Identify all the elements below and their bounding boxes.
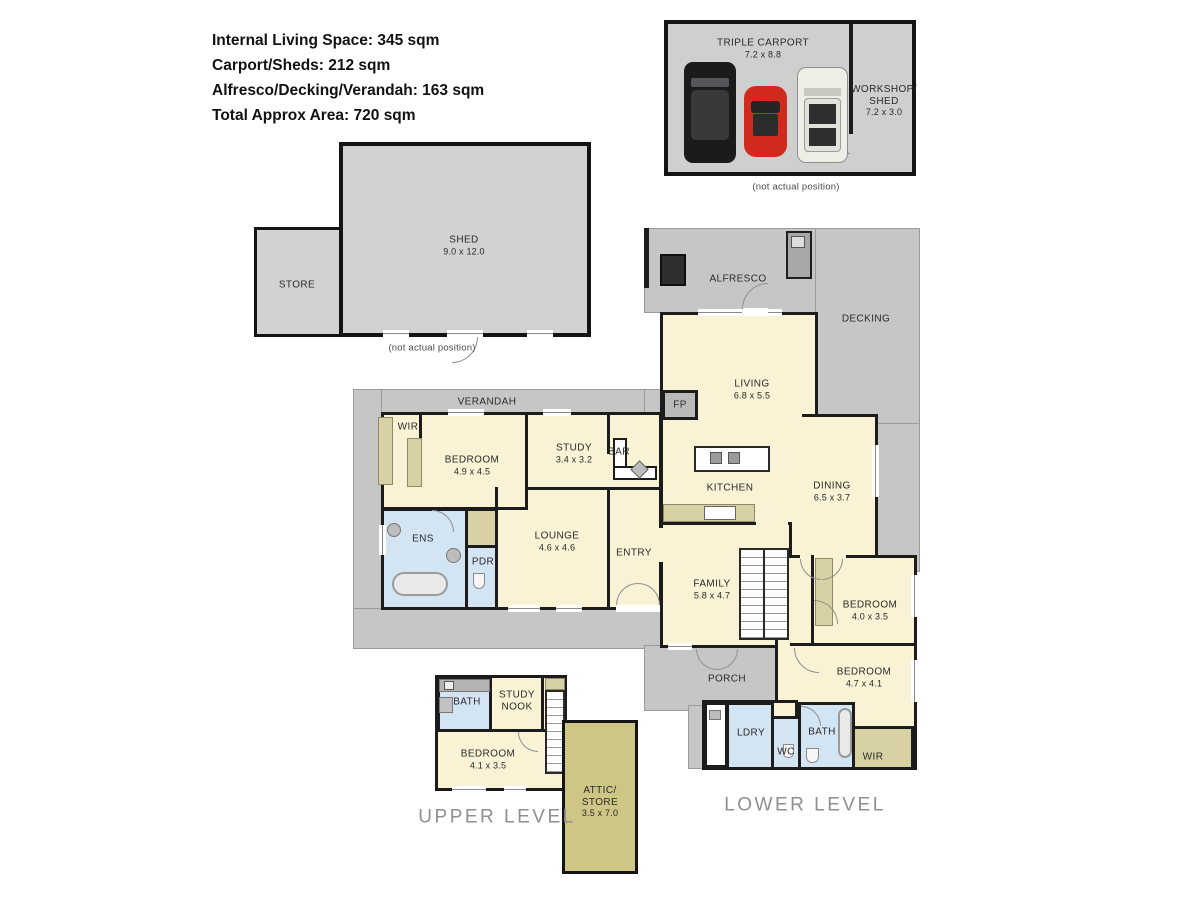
- white-car-front-window: [809, 104, 836, 124]
- workshop-label: WORKSHOP/ SHED 7.2 x 3.0: [851, 84, 917, 119]
- ensuite-sink-icon: [387, 523, 401, 537]
- window-bedroom1: [448, 409, 484, 416]
- room-label-family: FAMILY 5.8 x 4.7: [693, 579, 730, 602]
- wir2-room: [852, 726, 914, 770]
- kitchen-sink-2: [728, 452, 740, 464]
- floorplan-page: Internal Living Space: 345 sqm Carport/S…: [0, 0, 1200, 900]
- room-label-lounge: LOUNGE 4.6 x 4.6: [535, 531, 580, 554]
- entry-door-gap: [616, 605, 660, 612]
- wir1-shelf-right: [407, 438, 422, 487]
- room-label-ens: ENS: [412, 533, 434, 545]
- area-statistics: Internal Living Space: 345 sqm Carport/S…: [212, 28, 484, 128]
- room-label-dining: DINING 6.5 x 3.7: [813, 481, 850, 504]
- stat-carport-sheds: Carport/Sheds: 212 sqm: [212, 53, 484, 78]
- carport-note: (not actual position): [752, 181, 839, 193]
- window-bedroom2: [911, 575, 918, 617]
- outdoor-cabinet-detail: [791, 236, 805, 248]
- red-car-windshield: [751, 101, 780, 113]
- upper-level-label: UPPER LEVEL: [418, 811, 575, 823]
- shed-window-3: [527, 330, 553, 337]
- kitchen-family-opening: [756, 519, 788, 528]
- window-lounge-1: [508, 605, 540, 612]
- powder-toilet-icon: [473, 573, 485, 589]
- window-family: [668, 643, 692, 650]
- white-car-rear-window: [809, 128, 836, 146]
- room-label-bedroom2: BEDROOM 4.0 x 3.5: [843, 600, 897, 623]
- laundry-tub-icon: [709, 710, 721, 720]
- shed-window-2: [447, 330, 483, 337]
- room-label-attic-store: ATTIC/ STORE 3.5 x 7.0: [582, 785, 618, 820]
- room-label-pdr: PDR: [472, 556, 494, 568]
- red-car-roof: [753, 114, 778, 136]
- decking-area-upper: [815, 228, 920, 424]
- room-label-upper-bath: BATH: [453, 696, 481, 708]
- upper-window-2: [504, 786, 526, 793]
- shed-note: (not actual position): [388, 342, 475, 354]
- room-label-bar: BAR: [608, 446, 630, 458]
- window-ensuite: [379, 525, 386, 555]
- stove-icon: [704, 506, 736, 520]
- window-lounge-2: [556, 605, 582, 612]
- shed-window-1: [383, 330, 409, 337]
- upper-nook-east-wall: [541, 677, 544, 732]
- store-label: STORE: [279, 279, 315, 291]
- room-label-bath: BATH: [808, 726, 836, 738]
- window-living-sliders: [698, 309, 782, 316]
- room-label-study-nook: STUDY NOOK: [499, 690, 535, 713]
- bathtub-icon: [392, 572, 448, 596]
- wc-room: [771, 716, 801, 770]
- stairs-divider: [763, 550, 765, 638]
- lower-level-label: LOWER LEVEL: [724, 799, 886, 811]
- room-label-upper-bedroom: BEDROOM 4.1 x 3.5: [461, 749, 515, 772]
- alfresco-left-wall: [644, 228, 649, 288]
- room-label-study: STUDY 3.4 x 3.2: [556, 443, 592, 466]
- upper-bath-shower-icon: [439, 697, 453, 713]
- study-south-wall: [525, 487, 662, 490]
- window-bedroom3: [911, 660, 918, 702]
- entry-family-opening: [656, 528, 666, 562]
- room-label-bedroom3: BEDROOM 4.7 x 4.1: [837, 667, 891, 690]
- wir1-shelf-left: [378, 417, 393, 485]
- room-label-porch: PORCH: [708, 673, 746, 685]
- white-car-windshield: [804, 88, 841, 96]
- shed-label: SHED 9.0 x 12.0: [443, 235, 485, 258]
- upper-bath-sink-icon: [444, 681, 454, 690]
- black-suv-windshield: [691, 78, 729, 87]
- bath-toilet-icon: [806, 748, 819, 763]
- room-label-decking: DECKING: [842, 313, 890, 325]
- room-label-fp: FP: [673, 399, 687, 411]
- room-label-kitchen: KITCHEN: [707, 482, 754, 494]
- carport-label: TRIPLE CARPORT 7.2 x 8.8: [717, 38, 809, 61]
- bedroom1-east-wall: [525, 412, 528, 510]
- stat-alfresco-decking: Alfresco/Decking/Verandah: 163 sqm: [212, 78, 484, 103]
- lounge-entry-wall: [607, 487, 610, 610]
- room-label-entry: ENTRY: [616, 547, 652, 559]
- ensuite-sink2-icon: [446, 548, 461, 563]
- room-label-bedroom1: BEDROOM 4.9 x 4.5: [445, 455, 499, 478]
- window-dining: [872, 445, 879, 497]
- room-label-verandah: VERANDAH: [458, 396, 517, 408]
- room-label-alfresco: ALFRESCO: [709, 273, 766, 285]
- room-label-living: LIVING 6.8 x 5.5: [734, 379, 770, 402]
- room-label-wir2: WIR: [863, 751, 884, 763]
- bbq-icon: [660, 254, 686, 286]
- verandah-bottom: [353, 608, 662, 649]
- living-kitchen-opening: [680, 410, 802, 419]
- bath-tub-icon: [838, 708, 852, 758]
- upper-window-1: [452, 786, 486, 793]
- upper-stairs-cupboard: [545, 678, 565, 690]
- stat-total-area: Total Approx Area: 720 sqm: [212, 103, 484, 128]
- room-label-wir1: WIR: [398, 421, 419, 433]
- room-label-wc: WC: [777, 746, 794, 758]
- room-label-ldry: LDRY: [737, 727, 765, 739]
- alfresco-door-gap: [742, 308, 768, 315]
- window-study: [543, 409, 571, 416]
- robe-cupboard: [465, 508, 498, 548]
- bed2-bed3-wall: [790, 643, 917, 646]
- stat-internal-living: Internal Living Space: 345 sqm: [212, 28, 484, 53]
- kitchen-sink-1: [710, 452, 722, 464]
- black-suv-roof: [691, 90, 729, 140]
